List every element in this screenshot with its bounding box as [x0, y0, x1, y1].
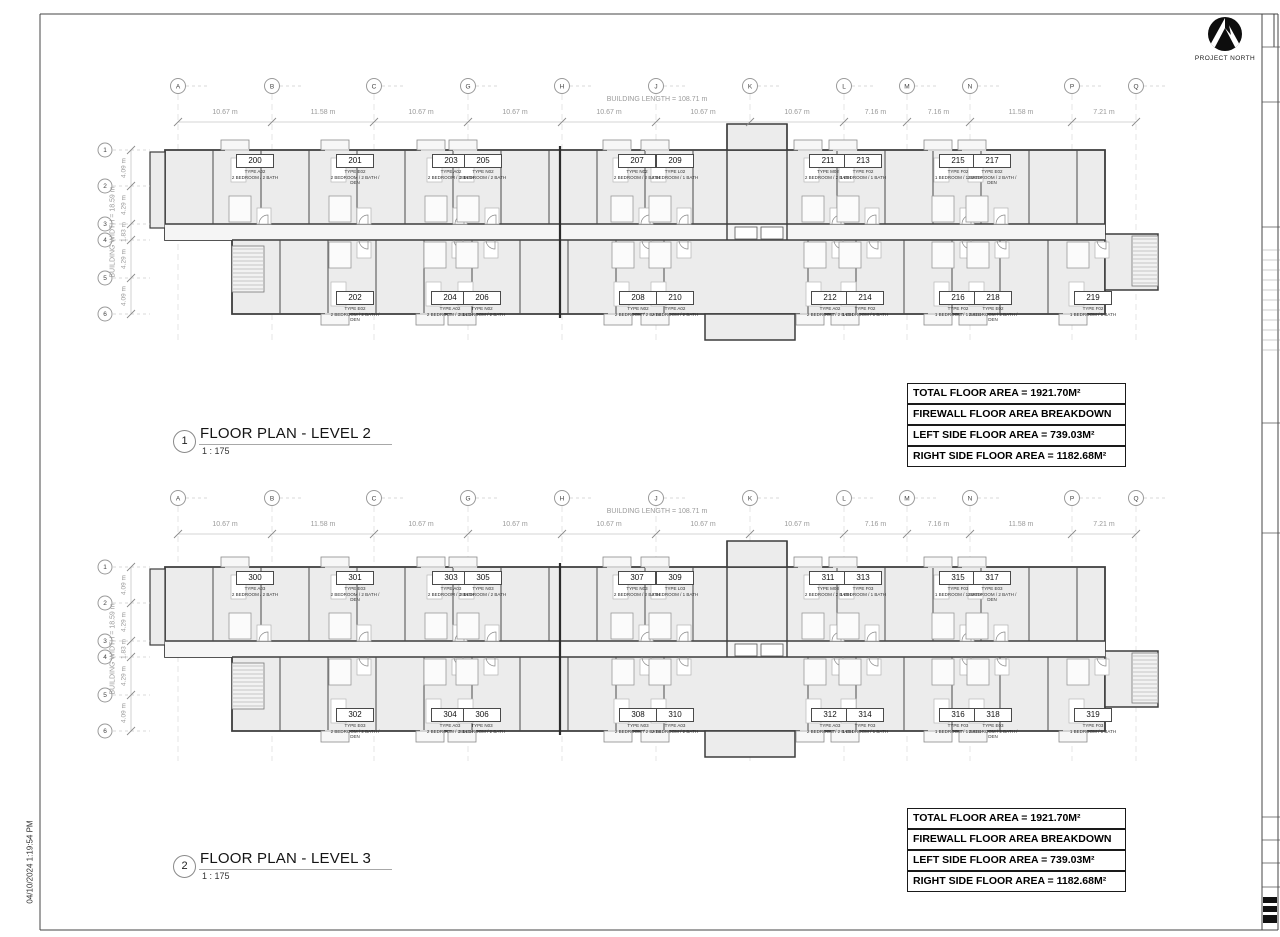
bay-dimension: 7.21 m	[1093, 521, 1114, 528]
unit-desc: 2 BEDROOM / 2 BATH / DEN	[964, 175, 1020, 186]
unit-label: 205TYPE N022 BEDROOM / 2 BATH	[455, 154, 511, 180]
grid-column-bubble	[171, 491, 186, 506]
unit-number: 319	[1074, 708, 1112, 722]
bay-dimension: 11.58 m	[311, 109, 336, 116]
drawing-sheet: { "sheet": { "north_label": "PROJECT NOR…	[0, 0, 1280, 937]
area-table-row: FIREWALL FLOOR AREA BREAKDOWN	[907, 829, 1126, 850]
row-dimension: 4.09 m	[121, 703, 128, 723]
grid-column-bubble	[963, 491, 978, 506]
area-table-row: FIREWALL FLOOR AREA BREAKDOWN	[907, 404, 1126, 425]
grid-column-bubble	[265, 79, 280, 94]
unit-desc: 1 BEDROOM / 1 BATH	[835, 592, 891, 597]
grid-column-bubble	[461, 79, 476, 94]
building-length-label: BUILDING LENGTH = 108.71 m	[607, 508, 708, 515]
unit-desc: 1 BEDROOM / 1 BATH	[837, 729, 893, 734]
unit-number: 202	[336, 291, 374, 305]
unit-number: 317	[973, 571, 1011, 585]
project-north-label: PROJECT NORTH	[1195, 55, 1255, 62]
unit-number: 210	[656, 291, 694, 305]
unit-number: 218	[974, 291, 1012, 305]
unit-label: 306TYPE N032 BEDROOM / 2 BATH	[454, 708, 510, 734]
unit-desc: 2 BEDROOM / 2 BATH	[647, 729, 703, 734]
unit-label: 209TYPE L022 BEDROOM / 1 BATH	[647, 154, 703, 180]
unit-desc: 2 BEDROOM / 1 BATH	[647, 592, 703, 597]
plan-number-bubble: 2	[173, 855, 196, 878]
bay-dimension: 10.67 m	[596, 521, 621, 528]
row-dimension: 1.83 m	[121, 222, 128, 242]
plan-title-underline	[199, 444, 392, 445]
unit-number: 209	[656, 154, 694, 168]
unit-desc: 2 BEDROOM / 2 BATH / DEN	[327, 592, 383, 603]
bay-dimension: 7.16 m	[865, 109, 886, 116]
unit-desc: 2 BEDROOM / 2 BATH	[647, 312, 703, 317]
grid-row-number: 4	[103, 237, 107, 244]
unit-number: 305	[464, 571, 502, 585]
grid-column-bubble	[367, 491, 382, 506]
unit-desc: 2 BEDROOM / 2 BATH / DEN	[327, 312, 383, 323]
grid-row-number: 6	[103, 728, 107, 735]
row-dimension: 4.09 m	[121, 286, 128, 306]
grid-row-number: 6	[103, 311, 107, 318]
grid-column-letter: P	[1070, 83, 1074, 90]
unit-desc: 2 BEDROOM / 2 BATH	[227, 175, 283, 180]
unit-number: 309	[656, 571, 694, 585]
grid-column-bubble	[649, 79, 664, 94]
unit-label: 302TYPE E032 BEDROOM / 2 BATH / DEN	[327, 708, 383, 739]
unit-number: 201	[336, 154, 374, 168]
grid-column-letter: G	[465, 495, 470, 502]
grid-column-letter: P	[1070, 495, 1074, 502]
unit-label: 318TYPE E032 BEDROOM / 2 BATH / DEN	[965, 708, 1021, 739]
unit-label: 317TYPE E032 BEDROOM / 2 BATH / DEN	[964, 571, 1020, 602]
bay-dimension: 7.16 m	[928, 521, 949, 528]
bay-dimension: 11.58 m	[1009, 521, 1034, 528]
grid-column-letter: B	[270, 495, 274, 502]
area-table-row: RIGHT SIDE FLOOR AREA = 1182.68M²	[907, 871, 1126, 892]
unit-label: 305TYPE N032 BEDROOM / 2 BATH	[455, 571, 511, 597]
grid-row-number: 3	[103, 638, 107, 645]
row-dimension: 4.29 m	[121, 195, 128, 215]
bay-dimension: 10.67 m	[784, 109, 809, 116]
unit-desc: 2 BEDROOM / 2 BATH	[227, 592, 283, 597]
unit-desc: 1 BEDROOM / 1 BATH	[1065, 729, 1121, 734]
building-width-label: BUILDING WIDTH = 18.59 m	[110, 186, 117, 277]
grid-column-letter: A	[176, 83, 181, 90]
grid-column-bubble	[265, 491, 280, 506]
grid-column-letter: N	[968, 495, 973, 502]
area-table-row: RIGHT SIDE FLOOR AREA = 1182.68M²	[907, 446, 1126, 467]
bay-dimension: 10.67 m	[596, 109, 621, 116]
datestamp: 04/10/2024 1:19:54 PM	[26, 820, 35, 903]
grid-row-number: 2	[103, 183, 107, 190]
grid-column-letter: L	[842, 495, 846, 502]
grid-column-letter: C	[372, 495, 377, 502]
row-dimension: 4.09 m	[121, 575, 128, 595]
grid-column-letter: L	[842, 83, 846, 90]
unit-label: 206TYPE N022 BEDROOM / 2 BATH	[454, 291, 510, 317]
unit-label: 310TYPE A032 BEDROOM / 2 BATH	[647, 708, 703, 734]
grid-column-bubble	[743, 79, 758, 94]
unit-label: 202TYPE E022 BEDROOM / 2 BATH / DEN	[327, 291, 383, 322]
unit-label: 319TYPE F031 BEDROOM / 1 BATH	[1065, 708, 1121, 734]
bay-dimension: 10.67 m	[690, 521, 715, 528]
grid-column-letter: J	[654, 495, 657, 502]
plan-title: FLOOR PLAN - LEVEL 3	[200, 850, 371, 867]
grid-row-bubble	[98, 307, 112, 321]
unit-number: 310	[656, 708, 694, 722]
grid-column-letter: N	[968, 83, 973, 90]
grid-row-number: 5	[103, 275, 107, 282]
bay-dimension: 10.67 m	[212, 109, 237, 116]
unit-label: 213TYPE F021 BEDROOM / 1 BATH	[835, 154, 891, 180]
unit-number: 318	[974, 708, 1012, 722]
grid-row-number: 2	[103, 600, 107, 607]
bay-dimension: 10.67 m	[408, 109, 433, 116]
grid-row-bubble	[98, 724, 112, 738]
grid-column-bubble	[837, 491, 852, 506]
grid-column-bubble	[837, 79, 852, 94]
bay-dimension: 7.21 m	[1093, 109, 1114, 116]
unit-number: 302	[336, 708, 374, 722]
bay-dimension: 11.58 m	[1009, 109, 1034, 116]
bay-dimension: 7.16 m	[865, 521, 886, 528]
unit-label: 301TYPE E032 BEDROOM / 2 BATH / DEN	[327, 571, 383, 602]
plan-number-bubble: 1	[173, 430, 196, 453]
bay-dimension: 10.67 m	[784, 521, 809, 528]
unit-label: 217TYPE E022 BEDROOM / 2 BATH / DEN	[964, 154, 1020, 185]
grid-column-bubble	[555, 79, 570, 94]
grid-column-letter: M	[904, 83, 909, 90]
project-north-logo	[1204, 13, 1248, 57]
grid-column-bubble	[1129, 79, 1144, 94]
unit-desc: 2 BEDROOM / 2 BATH	[455, 175, 511, 180]
unit-number: 200	[236, 154, 274, 168]
unit-desc: 2 BEDROOM / 2 BATH / DEN	[327, 729, 383, 740]
grid-column-letter: A	[176, 495, 181, 502]
grid-column-letter: H	[560, 495, 565, 502]
grid-column-letter: H	[560, 83, 565, 90]
grid-column-bubble	[963, 79, 978, 94]
floor-plan-linework: ABCGHJKLMNPQ123456ABCGHJKLMNPQ123456	[0, 0, 1280, 937]
bay-dimension: 10.67 m	[690, 109, 715, 116]
unit-number: 313	[844, 571, 882, 585]
unit-number: 300	[236, 571, 274, 585]
bay-dimension: 10.67 m	[408, 521, 433, 528]
unit-label: 300TYPE A032 BEDROOM / 2 BATH	[227, 571, 283, 597]
grid-column-letter: K	[748, 495, 753, 502]
unit-label: 210TYPE A022 BEDROOM / 2 BATH	[647, 291, 703, 317]
unit-label: 200TYPE A022 BEDROOM / 2 BATH	[227, 154, 283, 180]
unit-label: 314TYPE F031 BEDROOM / 1 BATH	[837, 708, 893, 734]
grid-column-bubble	[1129, 491, 1144, 506]
grid-column-bubble	[171, 79, 186, 94]
bay-dimension: 10.67 m	[502, 521, 527, 528]
grid-column-letter: B	[270, 83, 274, 90]
plan-title: FLOOR PLAN - LEVEL 2	[200, 425, 371, 442]
unit-desc: 2 BEDROOM / 2 BATH	[455, 592, 511, 597]
grid-column-letter: Q	[1133, 495, 1138, 502]
unit-label: 218TYPE E022 BEDROOM / 2 BATH / DEN	[965, 291, 1021, 322]
unit-number: 301	[336, 571, 374, 585]
plan-scale: 1 : 175	[202, 871, 230, 881]
row-dimension: 4.29 m	[121, 612, 128, 632]
unit-label: 201TYPE E022 BEDROOM / 2 BATH / DEN	[327, 154, 383, 185]
unit-desc: 1 BEDROOM / 1 BATH	[1065, 312, 1121, 317]
area-table-row: TOTAL FLOOR AREA = 1921.70M²	[907, 808, 1126, 829]
grid-row-bubble	[98, 143, 112, 157]
grid-column-letter: Q	[1133, 83, 1138, 90]
unit-desc: 2 BEDROOM / 2 BATH / DEN	[965, 729, 1021, 740]
area-table-row: LEFT SIDE FLOOR AREA = 739.03M²	[907, 425, 1126, 446]
row-dimension: 4.09 m	[121, 158, 128, 178]
unit-desc: 2 BEDROOM / 1 BATH	[647, 175, 703, 180]
grid-column-bubble	[743, 491, 758, 506]
building-length-label: BUILDING LENGTH = 108.71 m	[607, 96, 708, 103]
unit-number: 214	[846, 291, 884, 305]
unit-label: 309TYPE L032 BEDROOM / 1 BATH	[647, 571, 703, 597]
unit-number: 217	[973, 154, 1011, 168]
grid-column-bubble	[900, 491, 915, 506]
grid-row-number: 5	[103, 692, 107, 699]
unit-desc: 2 BEDROOM / 2 BATH / DEN	[964, 592, 1020, 603]
bay-dimension: 11.58 m	[311, 521, 336, 528]
unit-desc: 1 BEDROOM / 1 BATH	[837, 312, 893, 317]
unit-desc: 2 BEDROOM / 2 BATH / DEN	[327, 175, 383, 186]
unit-number: 219	[1074, 291, 1112, 305]
grid-column-bubble	[900, 79, 915, 94]
grid-row-number: 1	[103, 564, 107, 571]
unit-label: 219TYPE F021 BEDROOM / 1 BATH	[1065, 291, 1121, 317]
plan-title-underline	[199, 869, 392, 870]
grid-column-bubble	[1065, 79, 1080, 94]
grid-row-number: 1	[103, 147, 107, 154]
grid-column-letter: G	[465, 83, 470, 90]
grid-column-letter: C	[372, 83, 377, 90]
row-dimension: 4.29 m	[121, 249, 128, 269]
area-table-row: TOTAL FLOOR AREA = 1921.70M²	[907, 383, 1126, 404]
unit-number: 314	[846, 708, 884, 722]
unit-desc: 2 BEDROOM / 2 BATH	[454, 729, 510, 734]
bay-dimension: 10.67 m	[212, 521, 237, 528]
plan-scale: 1 : 175	[202, 446, 230, 456]
grid-column-bubble	[555, 491, 570, 506]
unit-number: 206	[463, 291, 501, 305]
grid-row-bubble	[98, 560, 112, 574]
grid-column-bubble	[649, 491, 664, 506]
unit-desc: 2 BEDROOM / 2 BATH	[454, 312, 510, 317]
grid-column-letter: K	[748, 83, 753, 90]
unit-number: 306	[463, 708, 501, 722]
unit-number: 213	[844, 154, 882, 168]
grid-column-bubble	[461, 491, 476, 506]
row-dimension: 4.29 m	[121, 666, 128, 686]
unit-label: 313TYPE F031 BEDROOM / 1 BATH	[835, 571, 891, 597]
building-width-label: BUILDING WIDTH = 18.59 m	[110, 603, 117, 694]
area-table-row: LEFT SIDE FLOOR AREA = 739.03M²	[907, 850, 1126, 871]
grid-column-bubble	[367, 79, 382, 94]
unit-desc: 2 BEDROOM / 2 BATH / DEN	[965, 312, 1021, 323]
grid-column-bubble	[1065, 491, 1080, 506]
unit-desc: 1 BEDROOM / 1 BATH	[835, 175, 891, 180]
unit-label: 214TYPE F021 BEDROOM / 1 BATH	[837, 291, 893, 317]
bay-dimension: 10.67 m	[502, 109, 527, 116]
grid-row-number: 3	[103, 221, 107, 228]
grid-column-letter: J	[654, 83, 657, 90]
grid-column-letter: M	[904, 495, 909, 502]
bay-dimension: 7.16 m	[928, 109, 949, 116]
row-dimension: 1.83 m	[121, 639, 128, 659]
grid-row-number: 4	[103, 654, 107, 661]
unit-number: 205	[464, 154, 502, 168]
